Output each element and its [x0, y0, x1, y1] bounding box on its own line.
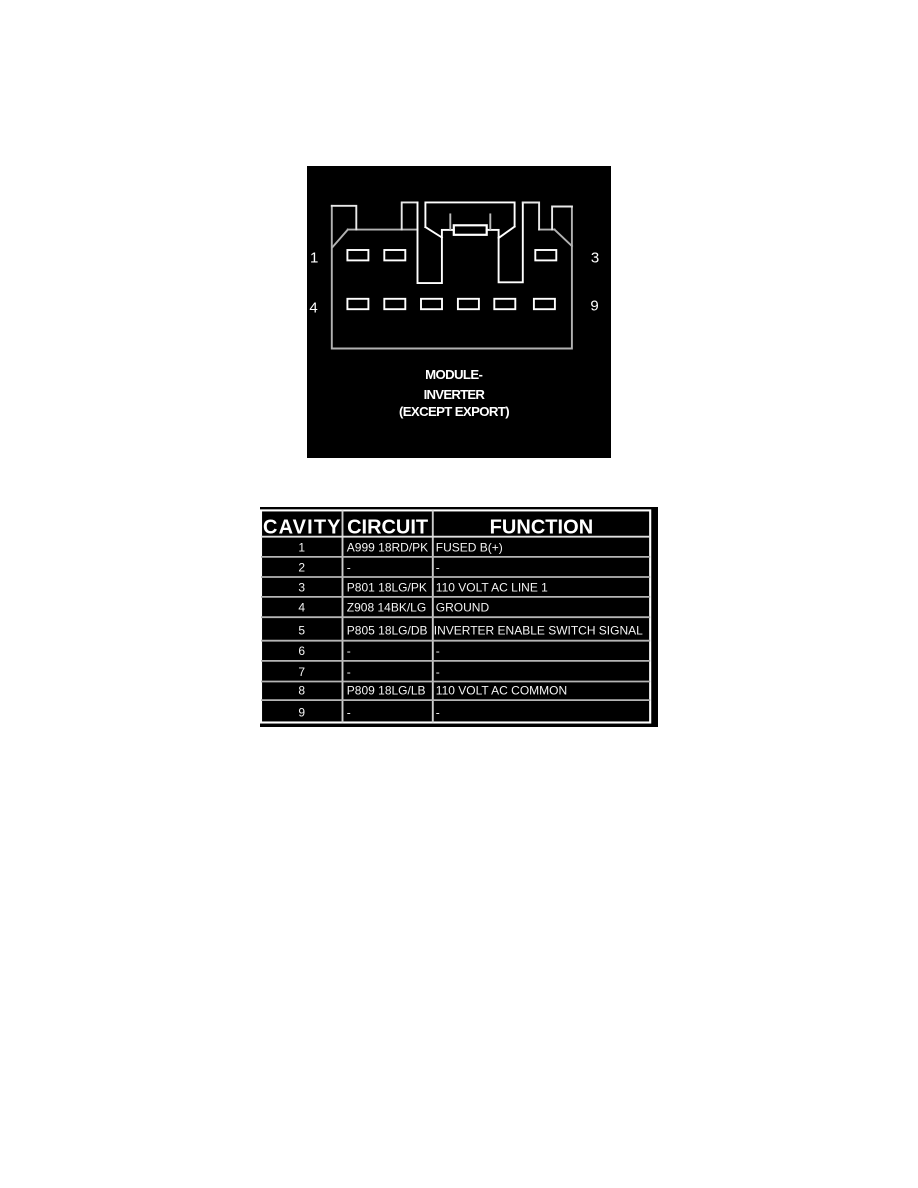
- svg-text:INVERTER: INVERTER: [424, 387, 486, 402]
- svg-text:-: -: [347, 705, 351, 719]
- svg-text:4: 4: [298, 601, 305, 615]
- svg-text:2: 2: [298, 560, 305, 574]
- svg-text:9: 9: [590, 298, 598, 315]
- svg-text:Z908 14BK/LG: Z908 14BK/LG: [347, 601, 426, 615]
- svg-text:5: 5: [298, 623, 305, 637]
- svg-text:FUSED B(+): FUSED B(+): [436, 541, 503, 555]
- svg-text:-: -: [347, 560, 351, 574]
- svg-text:P805 18LG/DB: P805 18LG/DB: [347, 623, 428, 637]
- svg-text:6: 6: [298, 644, 305, 658]
- svg-text:(EXCEPT EXPORT): (EXCEPT EXPORT): [399, 404, 510, 419]
- svg-text:A999 18RD/PK: A999 18RD/PK: [347, 541, 428, 555]
- svg-text:1: 1: [298, 541, 305, 555]
- svg-text:3: 3: [298, 580, 305, 594]
- svg-text:4: 4: [309, 300, 317, 317]
- svg-text:P801 18LG/PK: P801 18LG/PK: [347, 580, 427, 594]
- svg-text:3: 3: [591, 250, 599, 267]
- svg-text:P809 18LG/LB: P809 18LG/LB: [347, 684, 426, 698]
- svg-text:FUNCTION: FUNCTION: [490, 517, 594, 539]
- svg-text:-: -: [436, 644, 440, 658]
- svg-text:CIRCUIT: CIRCUIT: [347, 517, 428, 539]
- svg-text:INVERTER ENABLE SWITCH SIGNAL: INVERTER ENABLE SWITCH SIGNAL: [434, 623, 643, 637]
- svg-text:CAVITY: CAVITY: [263, 517, 341, 539]
- svg-text:-: -: [347, 644, 351, 658]
- svg-text:8: 8: [298, 684, 305, 698]
- svg-text:1: 1: [310, 250, 318, 267]
- svg-text:-: -: [436, 665, 440, 679]
- svg-text:9: 9: [298, 705, 305, 719]
- svg-text:-: -: [436, 705, 440, 719]
- svg-text:GROUND: GROUND: [436, 601, 490, 615]
- svg-text:110 VOLT AC COMMON: 110 VOLT AC COMMON: [436, 684, 567, 698]
- svg-text:-: -: [347, 665, 351, 679]
- svg-text:MODULE-: MODULE-: [425, 367, 483, 382]
- svg-text:-: -: [436, 560, 440, 574]
- svg-text:7: 7: [298, 665, 305, 679]
- svg-text:110 VOLT AC LINE 1: 110 VOLT AC LINE 1: [436, 580, 548, 594]
